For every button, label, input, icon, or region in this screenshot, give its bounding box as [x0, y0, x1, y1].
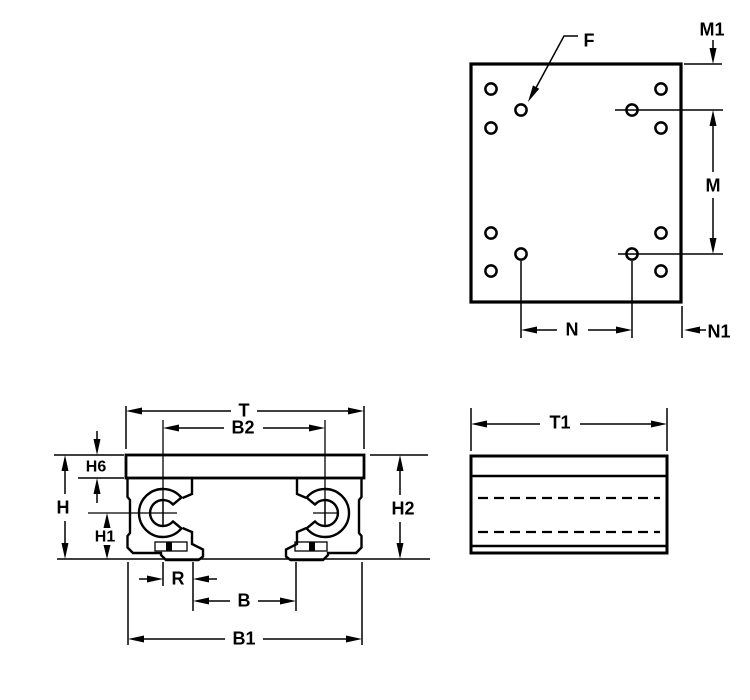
dim-label-b1: B1	[232, 628, 255, 648]
arrowhead-down	[62, 543, 69, 559]
arrowhead-left	[521, 327, 537, 334]
dim-f: F	[528, 30, 595, 102]
arrowhead-left	[471, 421, 487, 428]
rail-outline-side-view	[471, 456, 667, 553]
clamp-screw	[166, 542, 172, 551]
arrowhead-left	[163, 425, 179, 432]
dim-label-b2: B2	[231, 417, 254, 437]
dim-n1: N1	[682, 306, 731, 341]
arrowhead-up	[397, 455, 404, 471]
arrowhead-up	[104, 513, 111, 528]
arrowhead-left	[684, 327, 700, 334]
dim-label-h1: H1	[95, 529, 116, 546]
arrowhead-left	[126, 408, 142, 415]
dim-label-b: B	[238, 590, 251, 610]
arrowhead-up	[94, 478, 101, 494]
dim-b: B	[193, 562, 296, 611]
right-pillow-block	[286, 478, 362, 560]
arrowhead-up	[710, 110, 717, 126]
corner-hole	[485, 265, 496, 276]
dim-h2: H2	[370, 455, 428, 559]
drawing-page: F M1 M N	[0, 0, 750, 700]
side-view: T1	[471, 408, 667, 553]
corner-hole	[485, 122, 496, 133]
corner-hole	[655, 265, 666, 276]
arrowhead-right	[651, 421, 667, 428]
dim-label-h: H	[57, 497, 70, 517]
front-view: T B2 H6 H	[54, 400, 430, 648]
dim-label-h2: H2	[391, 498, 414, 518]
dim-h: H	[57, 455, 70, 559]
dim-label-r: R	[172, 568, 185, 588]
arrowhead-left	[193, 598, 209, 605]
arrowhead-right	[616, 327, 632, 334]
dim-m: M	[615, 110, 723, 254]
dim-label-t1: T1	[549, 412, 570, 432]
dim-n: N	[521, 261, 632, 339]
dim-label-h6: H6	[86, 459, 107, 476]
corner-hole	[485, 83, 496, 94]
dim-label-n1: N1	[707, 321, 730, 341]
arrowhead-down	[94, 439, 101, 455]
dim-label-m1: M1	[699, 19, 724, 39]
arrowhead-down	[397, 543, 404, 559]
dim-m1: M1	[684, 19, 725, 64]
corner-hole	[655, 83, 666, 94]
arrowhead-down	[710, 48, 717, 64]
corner-hole	[655, 227, 666, 238]
arrowhead-right	[280, 598, 296, 605]
dim-label-m: M	[706, 175, 721, 195]
f-leader-line	[531, 36, 578, 97]
dim-b2: B2	[163, 417, 325, 437]
arrowhead-down	[104, 545, 111, 559]
top-plate-front-view	[126, 455, 364, 478]
arrowhead-down	[710, 238, 717, 254]
mounting-holes	[485, 83, 666, 276]
dim-label-f: F	[584, 30, 595, 50]
corner-hole	[655, 122, 666, 133]
arrowhead-left	[128, 636, 144, 643]
f-hole	[515, 248, 526, 259]
arrowhead-right	[147, 576, 163, 583]
arrowhead-right	[309, 425, 325, 432]
corner-hole	[485, 227, 496, 238]
arrowhead-left	[193, 576, 209, 583]
clamp-screw	[309, 542, 315, 551]
dim-t1: T1	[471, 408, 667, 451]
arrowhead-up	[62, 455, 69, 471]
f-leader-arrowhead	[528, 85, 539, 102]
dim-label-n: N	[566, 319, 579, 339]
plate-outline-top-view	[471, 64, 681, 302]
top-view: F M1 M N	[471, 19, 731, 341]
left-pillow-block	[128, 478, 204, 560]
arrowhead-right	[346, 636, 362, 643]
technical-drawing: F M1 M N	[0, 0, 750, 700]
arrowhead-right	[348, 408, 364, 415]
dim-h1: H1	[95, 513, 116, 559]
f-hole	[515, 104, 526, 115]
